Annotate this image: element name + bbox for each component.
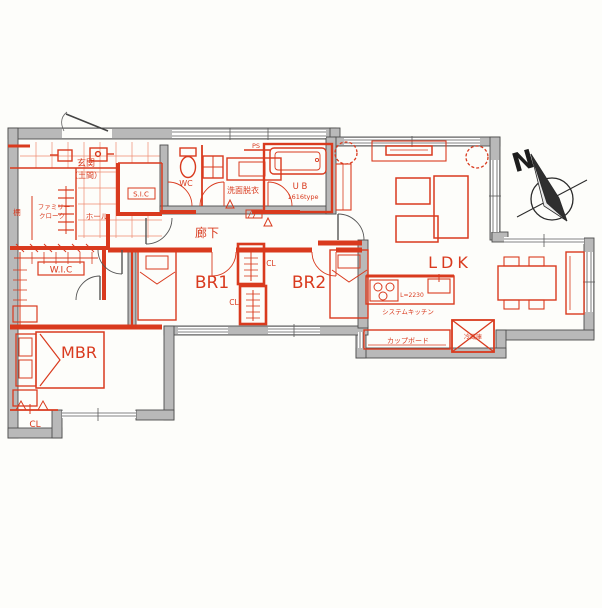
refrigerator-label: 冷蔵庫 [464,333,482,341]
floor-plan-canvas: N 玄関 （土間） ファミリー クローク 棚 ホール S.I.C WC PS 洗… [0,0,602,608]
sic-label: S.I.C [133,191,149,199]
unit-bath-size-label: 1616type [287,193,318,201]
entrance-door [62,112,112,138]
ldk-furniture [335,141,488,242]
closet-upper-label: CL [266,259,276,268]
ps-label: PS [252,142,260,150]
washroom-label: 洗面脱衣 [227,185,259,195]
dining [498,252,584,314]
shelf-label: 棚 [13,207,21,217]
genkan-label-line2: （土間） [70,170,102,180]
system-kitchen-label: システムキッチン [382,308,434,316]
family-cloak-label-line1: ファミリー [38,203,71,211]
family-cloak-label-line2: クローク [39,212,65,220]
ldk-label: LDK [428,253,472,272]
mbr-room [10,327,162,414]
kitchen-length-label: L=2230 [400,292,424,299]
floor-plan-drawing: N 玄関 （土間） ファミリー クローク 棚 ホール S.I.C WC PS 洗… [0,0,602,608]
mbr-label: MBR [61,343,97,362]
mbr-closet-label: CL [29,420,40,430]
closet-lower-label: CL [229,298,239,307]
compass: N [509,144,587,221]
wc-label: WC [179,179,193,188]
entrance-fixture-icons [8,146,114,161]
genkan-label-line1: 玄関 [77,157,95,169]
cupboard-label: カップボード [387,337,429,345]
wic-label: W.I.C [50,266,73,276]
br2-label: BR2 [292,273,326,293]
br-closets [238,244,266,324]
compass-north-label: N [509,144,538,179]
hall-label: ホール [86,212,109,221]
unit-bath-label: U B [293,182,308,192]
compass-needle-dark [531,154,567,221]
corridor-label: 廊下 [195,225,219,240]
br1-bed [138,250,176,320]
wc-room [168,145,202,206]
wic-room [10,244,104,326]
br1-label: BR1 [195,273,229,293]
